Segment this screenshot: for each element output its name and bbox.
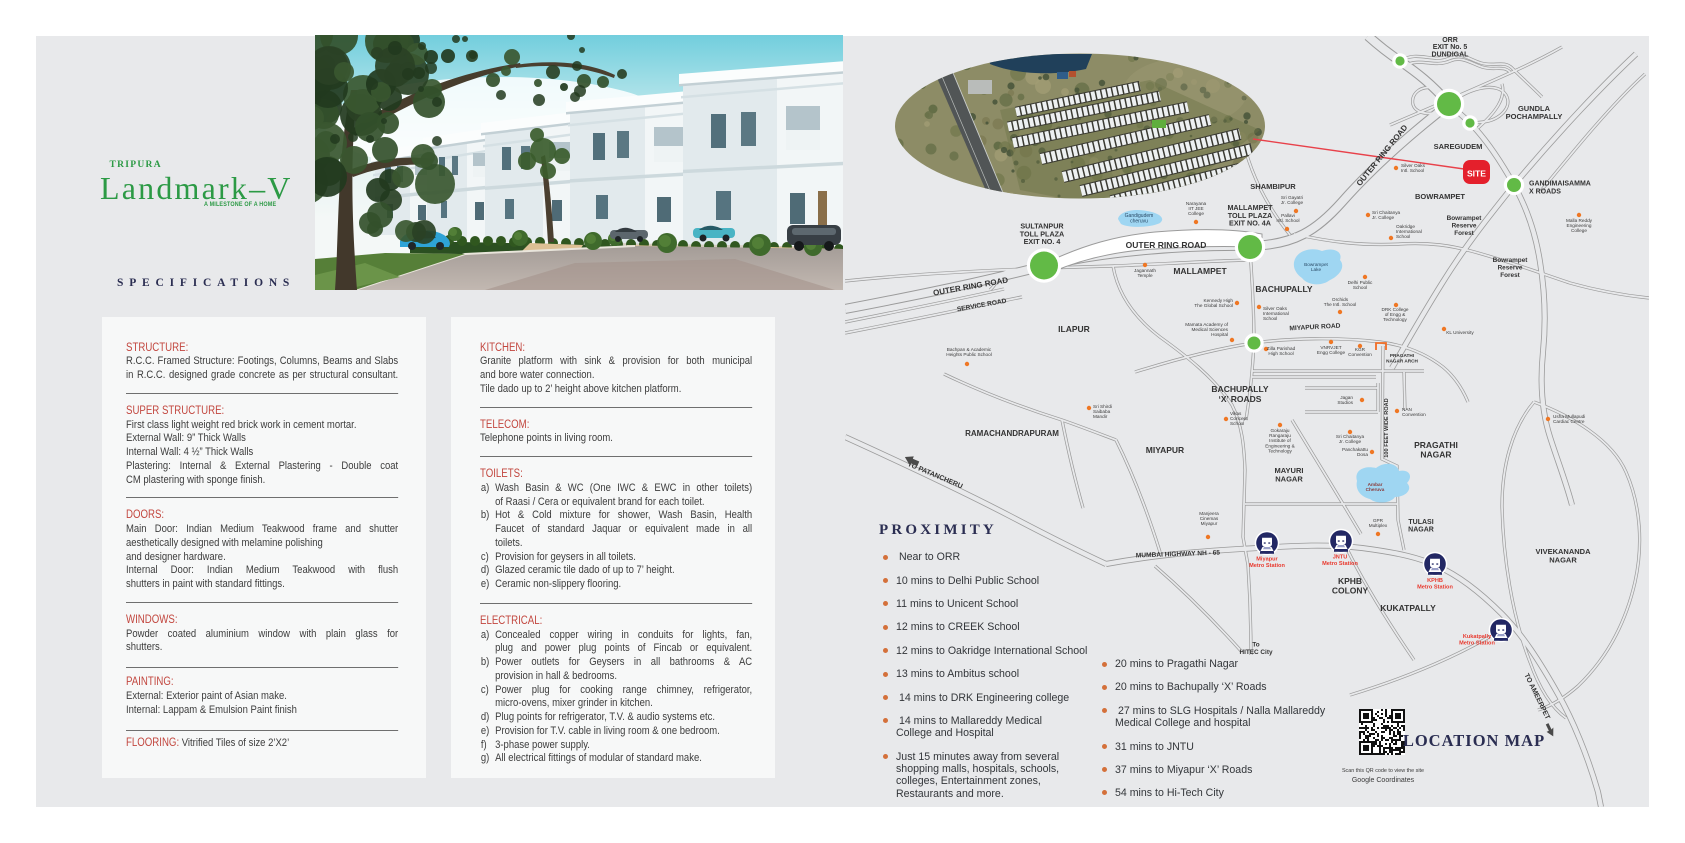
svg-text:The Global School: The Global School	[1194, 303, 1233, 308]
svg-text:GANDIMAISAMMA: GANDIMAISAMMA	[1529, 181, 1591, 188]
svg-text:School: School	[1263, 316, 1277, 321]
svg-text:KL University: KL University	[1446, 330, 1474, 335]
svg-text:School: School	[1230, 421, 1244, 426]
svg-text:To: To	[1252, 642, 1259, 649]
svg-text:High School: High School	[1268, 351, 1293, 356]
svg-text:Dosa: Dosa	[1357, 452, 1368, 457]
svg-text:COLONY: COLONY	[1332, 586, 1369, 596]
svg-text:Convention: Convention	[1402, 412, 1426, 417]
svg-text:Jr. College: Jr. College	[1372, 215, 1395, 220]
svg-text:‘X’ ROADS: ‘X’ ROADS	[1219, 394, 1262, 404]
svg-text:Engg College: Engg College	[1317, 350, 1346, 355]
svg-text:Temple: Temple	[1137, 273, 1153, 278]
svg-text:KPHB: KPHB	[1338, 576, 1362, 586]
svg-text:Metro Station: Metro Station	[1417, 584, 1453, 590]
svg-text:Technology: Technology	[1383, 317, 1407, 322]
svg-text:BACHUPALLY: BACHUPALLY	[1211, 384, 1268, 394]
svg-text:Convention: Convention	[1348, 352, 1372, 357]
svg-text:ORR: ORR	[1442, 37, 1458, 44]
svg-text:Kukatpally: Kukatpally	[1463, 634, 1492, 640]
svg-text:POCHAMPALLY: POCHAMPALLY	[1506, 112, 1563, 121]
svg-text:OUTER RING ROAD: OUTER RING ROAD	[1355, 123, 1410, 188]
svg-text:College: College	[1571, 228, 1587, 233]
svg-text:SHAMBIPUR: SHAMBIPUR	[1250, 182, 1296, 191]
svg-text:College: College	[1188, 211, 1204, 216]
svg-text:Forest: Forest	[1500, 272, 1520, 279]
svg-text:LOCATION MAP: LOCATION MAP	[1403, 731, 1545, 750]
svg-text:KUKATPALLY: KUKATPALLY	[1380, 603, 1436, 613]
svg-text:Hospital: Hospital	[1211, 332, 1228, 337]
svg-text:SERVICE ROAD: SERVICE ROAD	[956, 298, 1007, 314]
svg-text:EXIT No. 5: EXIT No. 5	[1433, 44, 1468, 51]
svg-text:Forest: Forest	[1454, 230, 1474, 237]
svg-text:Multiplex: Multiplex	[1369, 523, 1388, 528]
svg-text:BACHUPALLY: BACHUPALLY	[1255, 284, 1312, 294]
svg-text:Reserve: Reserve	[1498, 265, 1523, 272]
svg-text:PRAGATHI: PRAGATHI	[1390, 353, 1414, 358]
svg-text:Intl. School: Intl. School	[1401, 168, 1424, 173]
svg-text:Technology: Technology	[1268, 448, 1292, 453]
svg-text:NAGAR: NAGAR	[1420, 450, 1451, 460]
svg-text:Metro Station: Metro Station	[1249, 563, 1285, 569]
svg-text:BOWRAMPET: BOWRAMPET	[1415, 192, 1465, 201]
svg-text:SITE: SITE	[1467, 169, 1486, 179]
svg-text:MIYAPUR ROAD: MIYAPUR ROAD	[1289, 323, 1341, 333]
svg-text:MIYAPUR: MIYAPUR	[1146, 445, 1184, 455]
svg-text:Mandir: Mandir	[1093, 414, 1108, 419]
svg-text:School: School	[1353, 285, 1367, 290]
svg-text:SAREGUDEM: SAREGUDEM	[1434, 142, 1483, 151]
svg-text:Bowrampet: Bowrampet	[1493, 257, 1529, 264]
svg-text:Studios: Studios	[1337, 400, 1353, 405]
svg-text:PRAGATHI: PRAGATHI	[1414, 440, 1458, 450]
svg-text:NAGAR: NAGAR	[1549, 556, 1577, 565]
svg-text:MALLAMPET: MALLAMPET	[1173, 266, 1227, 276]
svg-text:JNTU: JNTU	[1333, 555, 1348, 561]
svg-text:NAGAR ARCH: NAGAR ARCH	[1386, 358, 1418, 363]
svg-text:Heights Public School: Heights Public School	[946, 352, 992, 357]
svg-text:Miyapur: Miyapur	[1201, 521, 1218, 526]
svg-text:EXIT NO. 4A: EXIT NO. 4A	[1229, 219, 1271, 228]
svg-text:Bowrampet: Bowrampet	[1447, 215, 1483, 222]
svg-text:cheruvu: cheruvu	[1130, 219, 1148, 225]
svg-text:Miyapur: Miyapur	[1256, 557, 1278, 563]
svg-text:Metro Station: Metro Station	[1459, 640, 1495, 646]
svg-text:X ROADS: X ROADS	[1529, 189, 1561, 196]
svg-text:TULASI: TULASI	[1408, 519, 1433, 526]
svg-text:RAMACHANDRAPURAM: RAMACHANDRAPURAM	[965, 429, 1059, 438]
svg-text:MUMBAI HIGHWAY NH - 65: MUMBAI HIGHWAY NH - 65	[1136, 550, 1221, 560]
svg-text:ILAPUR: ILAPUR	[1058, 324, 1090, 334]
svg-text:Intl. School: Intl. School	[1276, 218, 1299, 223]
svg-text:OUTER RING ROAD: OUTER RING ROAD	[1126, 240, 1207, 250]
svg-text:EXIT NO. 4: EXIT NO. 4	[1024, 237, 1061, 246]
svg-text:Google Coordinates: Google Coordinates	[1352, 777, 1415, 784]
svg-text:Jr. College: Jr. College	[1339, 439, 1362, 444]
svg-text:DUNDIGAL: DUNDIGAL	[1432, 51, 1470, 58]
svg-text:Cardiac Centre: Cardiac Centre	[1553, 419, 1585, 424]
svg-text:NAGAR: NAGAR	[1275, 475, 1303, 484]
svg-text:Scan this QR code to view the: Scan this QR code to view the site	[1342, 768, 1424, 774]
svg-text:Metro Station: Metro Station	[1322, 561, 1358, 567]
svg-text:TO PATANCHERU: TO PATANCHERU	[906, 461, 963, 490]
svg-text:Jr. College: Jr. College	[1281, 200, 1304, 205]
svg-text:The Intl. School: The Intl. School	[1324, 302, 1357, 307]
svg-text:NAGAR: NAGAR	[1408, 527, 1434, 534]
svg-text:100 FEET WIDE ROAD: 100 FEET WIDE ROAD	[1384, 398, 1390, 457]
svg-text:Lake: Lake	[1311, 267, 1322, 272]
svg-text:KPHB: KPHB	[1427, 578, 1443, 584]
svg-text:Cheruva: Cheruva	[1366, 487, 1385, 492]
svg-text:Reserve: Reserve	[1452, 223, 1477, 230]
svg-text:School: School	[1396, 234, 1410, 239]
